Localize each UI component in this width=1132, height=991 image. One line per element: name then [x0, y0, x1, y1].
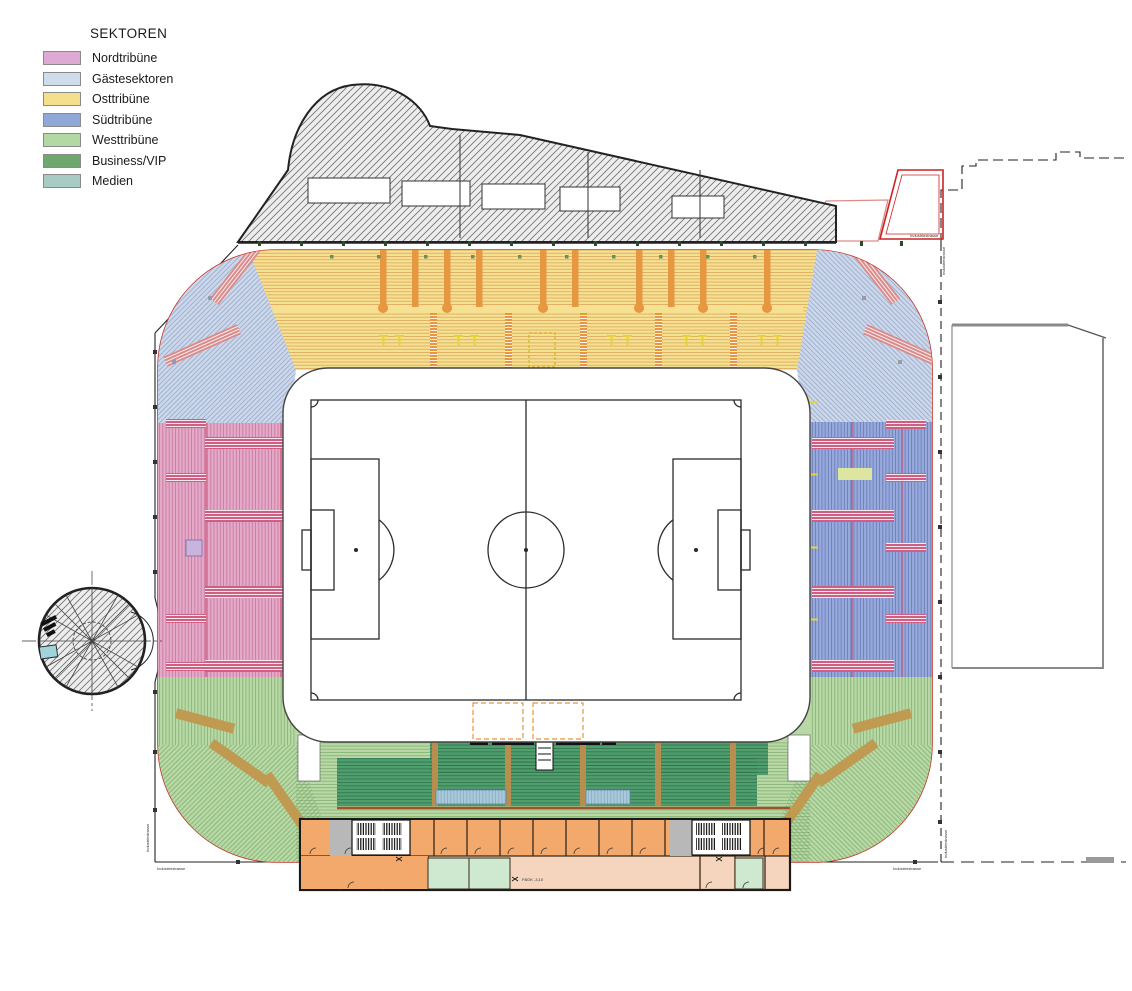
- swatch-suedtribuene: [43, 113, 81, 127]
- boundary-northeast-stepped: [941, 152, 1126, 243]
- east-stand-osttribuene: [246, 246, 824, 370]
- street-label-left: Industriestrasse: [145, 823, 150, 852]
- west-building-green-room-2: [735, 858, 763, 889]
- stair-core-left: [330, 820, 410, 856]
- legend-row-medien: Medien: [43, 171, 173, 192]
- parcel-red-outer: [880, 170, 943, 239]
- west-building-lower-rooms-left: [301, 856, 428, 889]
- vomitory-left: [298, 735, 320, 781]
- penalty-spot-left: [355, 549, 358, 552]
- north-stand-box: [186, 540, 202, 556]
- spiral-teal-box: [39, 645, 58, 659]
- center-spot: [525, 549, 528, 552]
- west-building: FBOK -3,10: [300, 819, 790, 890]
- inner-bowl: [283, 368, 810, 742]
- legend-row-business-vip: Business/VIP: [43, 151, 173, 172]
- stadium-floor-plan: SEKTOREN Nordtribüne Gästesektoren Osttr…: [0, 0, 1132, 991]
- neighbor-building-outline: [952, 325, 1106, 668]
- street-label-right-top: Industriestrasse: [941, 246, 946, 275]
- legend-row-gaestesektoren: Gästesektoren: [43, 69, 173, 90]
- stair-core-right: [670, 820, 750, 856]
- swatch-business-vip: [43, 154, 81, 168]
- spiral-ramp: [22, 571, 162, 711]
- parcel-label: Industriestrasse: [910, 233, 939, 238]
- vomitory-right: [788, 735, 810, 781]
- legend-row-nordtribuene: Nordtribüne: [43, 48, 173, 69]
- legend-row-osttribuene: Osttribüne: [43, 89, 173, 110]
- street-label-bottom-right: Industriestrasse: [893, 866, 922, 871]
- stadium-bowl: [150, 242, 941, 870]
- sector-legend: SEKTOREN Nordtribüne Gästesektoren Osttr…: [43, 26, 173, 192]
- legend-row-westtribuene: Westtribüne: [43, 130, 173, 151]
- penalty-spot-right: [695, 549, 698, 552]
- swatch-westtribuene: [43, 133, 81, 147]
- players-tunnel: [536, 738, 553, 770]
- street-label-bottom-left: Industriestrasse: [157, 866, 186, 871]
- south-stand-suedtribuene: [800, 398, 940, 696]
- roof-outline: [238, 84, 836, 242]
- legend-row-suedtribuene: Südtribüne: [43, 110, 173, 131]
- boundary-gray-marker: [1086, 857, 1114, 863]
- swatch-osttribuene: [43, 92, 81, 106]
- legend-title: SEKTOREN: [90, 26, 173, 41]
- swatch-gaestesektoren: [43, 72, 81, 86]
- street-label-right-bottom: Industriestrasse: [943, 829, 948, 858]
- swatch-medien: [43, 174, 81, 188]
- east-stand-walkway: [258, 306, 803, 313]
- swatch-nordtribuene: [43, 51, 81, 65]
- south-stand-highlight: [838, 468, 872, 480]
- east-building-roof: [238, 84, 903, 246]
- north-stand-nordtribuene: [150, 419, 296, 677]
- guest-sector-southeast-corner: [797, 242, 941, 426]
- level-label: FBOK -3,10: [522, 877, 544, 882]
